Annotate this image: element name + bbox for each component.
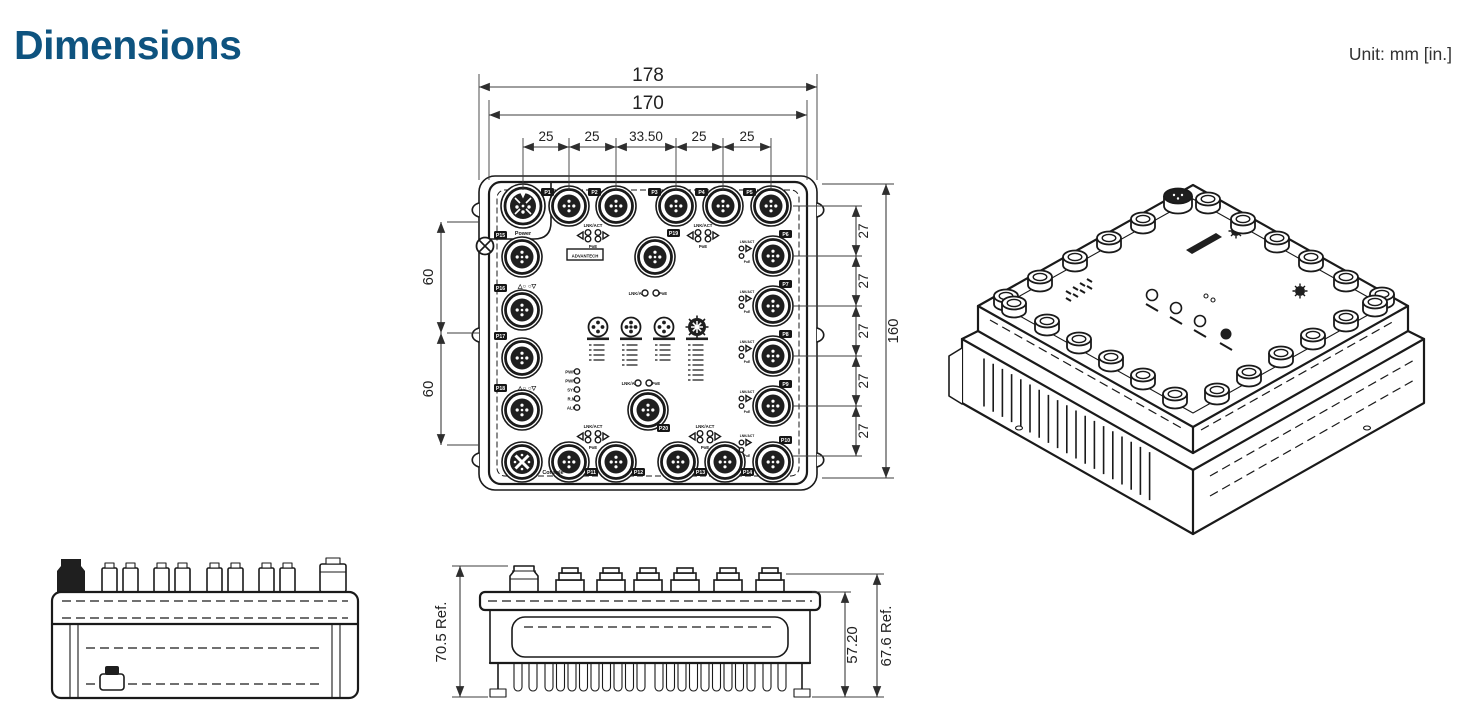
m12-port [753,286,793,326]
power-connector [501,184,545,228]
m12-port [753,386,793,426]
dim-right-pitch: 27 [856,373,871,388]
dim-overall-height: 160 [885,318,902,343]
port-tab-label: P16 [496,286,505,292]
port-tab-label: P19 [669,231,678,237]
poe-label: PoE [701,445,709,450]
lnk-act-label: LNK/ACT [696,424,715,429]
m12-port [596,442,636,482]
port-tab-label: P12 [634,470,643,476]
port-tab-label: P6 [782,232,788,238]
dim-body-height: 57.20 [844,626,861,664]
lnk-act-label: LNK/ACT [694,223,713,228]
rear-power-connector [57,559,85,592]
poe-label: PoE [589,445,597,450]
port-tab-label: P9 [782,382,788,388]
dim-left-pitch: 60 [420,269,437,286]
side-heatsink-fins [490,663,810,697]
lnk-act-label: LNK/ACT [740,390,754,394]
console-connector [502,442,542,482]
advantech-logo: ADVANTECH [567,249,603,260]
mounting-screw-icon [477,238,494,255]
m12-port [753,442,793,482]
dip-marks: △○ ○▽ [517,385,537,392]
iso-view [949,185,1424,534]
led-cluster-center: LNK/ACT PoE [622,380,661,386]
m12-port [656,186,696,226]
m12-port [549,186,589,226]
lnk-act-label: LNK/ACT [740,434,754,438]
poe-label: PoE [699,244,707,249]
dip-marks: △○ ○▽ [517,283,537,290]
dim-outer-ref: 67.6 Ref. [878,606,895,667]
m12-port [753,336,793,376]
m12-port [753,236,793,276]
dim-overall-ref: 70.5 Ref. [433,602,450,663]
poe-label: PoE [659,291,667,296]
dim-pitch: 25 [538,129,553,144]
dim-overall-width: 178 [632,65,664,86]
dim-pitch: 25 [691,129,706,144]
m12-port [658,442,698,482]
rear-connectors [102,558,346,592]
dim-right-pitch: 27 [856,423,871,438]
port-tab-label: P14 [743,470,752,476]
dim-pitch: 33.50 [629,129,663,144]
dim-body-width: 170 [632,93,664,114]
m12-port [751,186,791,226]
led-cluster-center: LNK/ACT PoE [629,290,668,296]
dim-right-pitch: 27 [856,323,871,338]
port-tab-label: P13 [696,470,705,476]
poe-label: PoE [744,410,751,414]
port-tab-label: P7 [782,282,788,288]
poe-label: PoE [589,244,597,249]
lnk-act-label: LNK/ACT [740,290,754,294]
rear-view [52,558,358,698]
port-tab-label: P1 [544,190,550,196]
poe-label: PoE [652,381,660,386]
lnk-act-label: LNK/ACT [740,340,754,344]
dim-right-pitch: 27 [856,223,871,238]
front-view: P1 P2 P3 P4 P5 P6 P7 P8 P9 P10 P11 P12 P… [420,65,902,490]
lnk-act-label: LNK/ACT [740,240,754,244]
m12-port [596,186,636,226]
m12-port [635,237,675,277]
m12-port [502,237,542,277]
logo-text: ADVANTECH [572,253,599,258]
port-tab-label: P3 [651,190,657,196]
side-dimensions: 70.5 Ref. 57.20 67.6 Ref. [433,566,895,697]
lnk-act-label: LNK/ACT [584,424,603,429]
poe-label: PoE [744,310,751,314]
poe-label: PoE [744,360,751,364]
console-label: Console [542,470,563,476]
port-tab-label: P5 [746,190,752,196]
m12-port [703,186,743,226]
m12-port [549,442,589,482]
port-tab-label: P10 [781,438,790,444]
dim-pitch: 25 [739,129,754,144]
m12-port [705,442,745,482]
port-tab-label: P11 [587,470,596,476]
dim-right-pitch: 27 [856,273,871,288]
power-label: Power [515,231,532,237]
port-tab-label: P8 [782,332,788,338]
poe-label: PoE [744,454,751,458]
dimensions-page: Dimensions Unit: mm [in.] [0,0,1468,721]
port-tab-label: P4 [698,190,704,196]
port-tab-label: P17 [496,334,505,340]
dimension-drawing: P1 P2 P3 P4 P5 P6 P7 P8 P9 P10 P11 P12 P… [0,0,1468,721]
poe-label: PoE [744,260,751,264]
dim-left-pitch: 60 [420,381,437,398]
side-view: 70.5 Ref. 57.20 67.6 Ref. [433,566,895,697]
m12-port [502,338,542,378]
dim-pitch: 25 [584,129,599,144]
port-tab-label: P15 [496,233,505,239]
port-tab-label: P18 [496,386,505,392]
side-connectors [510,566,784,592]
m12-port [502,390,542,430]
port-tab-label: P20 [659,426,668,432]
port-tab-label: P2 [591,190,597,196]
lnk-act-label: LNK/ACT [584,223,603,228]
m12-port [502,290,542,330]
